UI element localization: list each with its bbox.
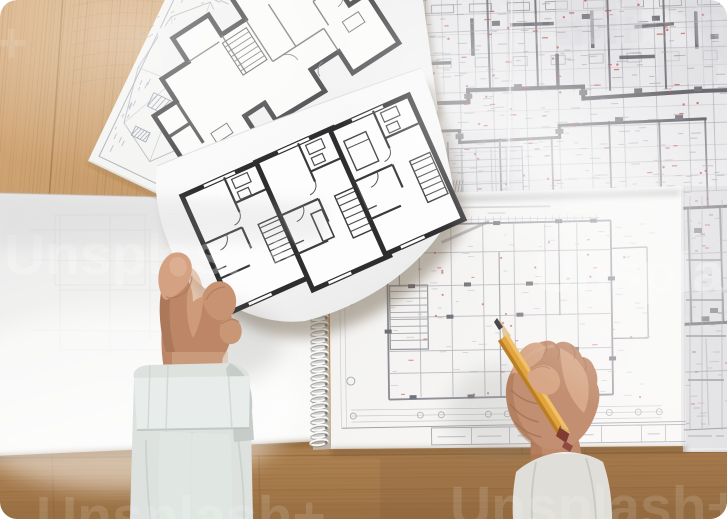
svg-text:Unsplash+: Unsplash+	[450, 475, 727, 519]
svg-text:Unsplash+: Unsplash+	[470, 0, 727, 57]
svg-text:Unsplash+: Unsplash+	[36, 485, 326, 519]
svg-text:Unsplash+: Unsplash+	[0, 11, 28, 75]
svg-text:Unsplash+: Unsplash+	[534, 241, 727, 305]
